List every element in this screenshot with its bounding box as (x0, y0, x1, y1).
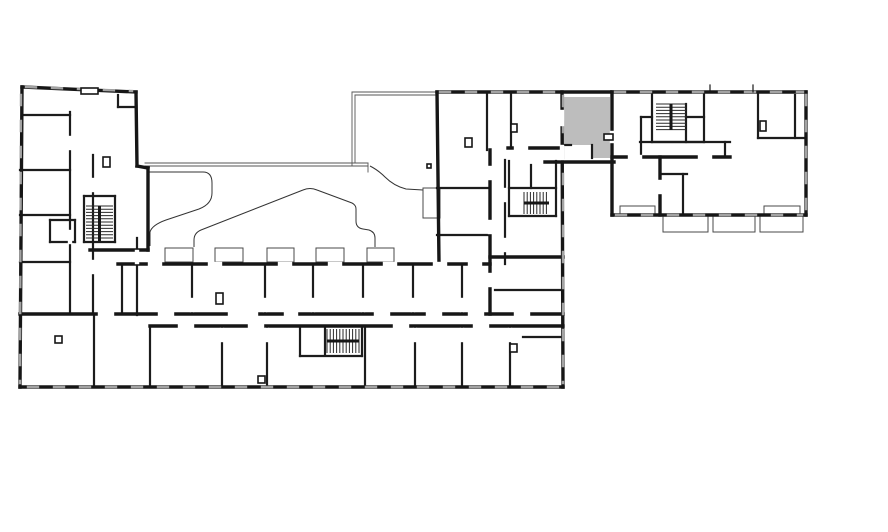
highlighted-unit-fill[interactable] (563, 97, 610, 158)
courtyard-curves (149, 166, 423, 247)
stair-treads (524, 192, 549, 214)
stair-treads (656, 104, 686, 130)
highlighted-unit (563, 97, 610, 158)
canopy-outline (145, 92, 437, 172)
door-openings (70, 112, 710, 340)
shaft-markers (55, 88, 766, 383)
terraces-balconies (165, 188, 803, 262)
stair-treads (86, 206, 113, 241)
floor-plan-svg (0, 0, 888, 532)
stair-treads (327, 329, 359, 353)
floor-plan-stage (0, 0, 888, 532)
